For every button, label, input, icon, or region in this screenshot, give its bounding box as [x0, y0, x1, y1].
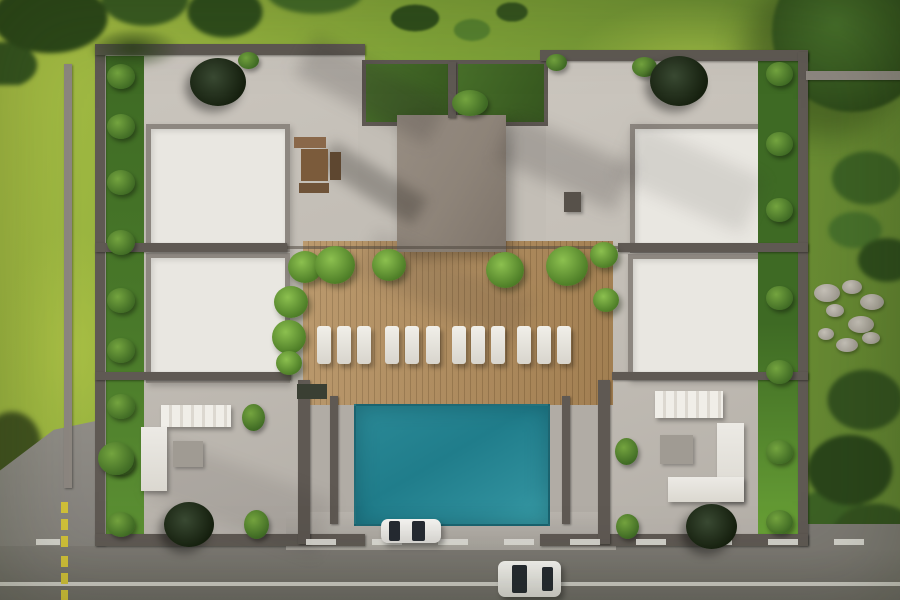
car-rear-window	[412, 521, 425, 541]
divider-wall-right-upper	[618, 243, 808, 252]
roof-panel-right-bottom	[628, 254, 764, 380]
garden-plants-top-center	[360, 0, 550, 60]
right-courtyard-loungers	[655, 391, 723, 418]
car-on-road	[498, 561, 561, 597]
perimeter-wall-right	[798, 52, 808, 545]
divider-line-center	[287, 246, 618, 249]
pergola-bench	[330, 152, 341, 180]
divider-wall-left-lower	[95, 372, 291, 380]
roof-panel-left-top	[146, 124, 290, 252]
pergola-dining-table	[301, 149, 328, 181]
car-windshield	[389, 521, 400, 541]
right-courtyard-sofa-horizontal	[668, 477, 744, 502]
garden-divider-wall	[448, 62, 456, 118]
perimeter-wall-bottom-left	[95, 534, 365, 546]
left-courtyard-sofa	[141, 427, 167, 491]
pergola-chair	[299, 183, 329, 193]
road-edge-line	[0, 582, 900, 586]
parked-car	[381, 519, 441, 543]
pool-side-wall-right	[562, 396, 570, 524]
right-courtyard-table	[660, 435, 693, 464]
left-courtyard-table	[173, 441, 203, 467]
deck-planter	[297, 384, 327, 399]
pergola-chair	[294, 137, 326, 148]
divider-wall-left-upper	[95, 243, 287, 252]
divider-wall-right-lower	[612, 372, 808, 380]
main-road	[0, 546, 900, 600]
car-windshield	[512, 565, 527, 593]
perimeter-wall-left	[95, 46, 105, 545]
road-right-section	[804, 524, 900, 550]
terrace-bench	[564, 192, 581, 212]
outer-fence-left	[64, 64, 72, 488]
roof-panel-left-bottom	[146, 253, 290, 383]
planting-strip-right	[758, 58, 802, 540]
perimeter-wall-top-right	[540, 50, 808, 61]
tree-overhang-top-left	[92, 30, 182, 70]
car-rear-window	[542, 567, 553, 591]
courtyard-wall-right	[598, 380, 610, 544]
perimeter-wall-bottom-right	[540, 534, 808, 546]
aerial-site-render	[0, 0, 900, 600]
boundary-wall-extension-right	[806, 71, 900, 80]
planting-strip-left	[106, 56, 144, 538]
swimming-pool	[354, 404, 550, 526]
left-courtyard-loungers	[161, 405, 231, 427]
